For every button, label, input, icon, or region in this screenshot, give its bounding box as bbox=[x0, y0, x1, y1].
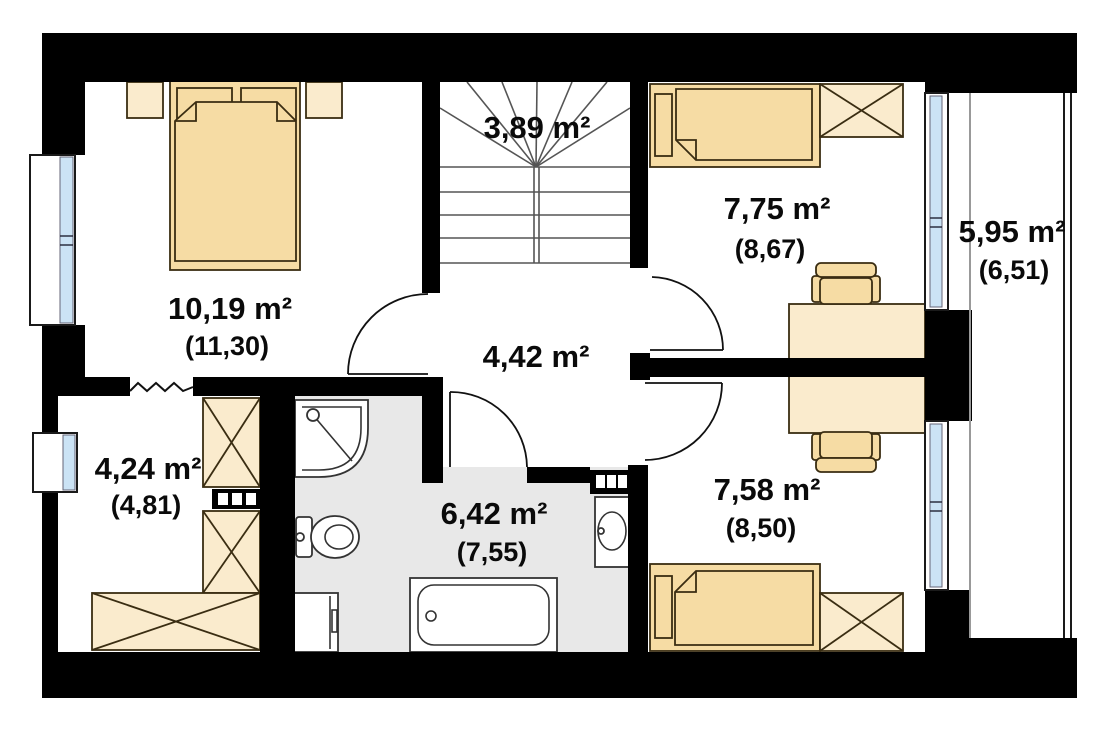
hallway-area-label: 4,42 m² bbox=[483, 339, 590, 374]
bedroom-area-alt-label: (11,30) bbox=[185, 331, 269, 361]
desk-chair-top bbox=[812, 263, 880, 304]
room-bottom-right-area-label: 7,58 m² bbox=[714, 472, 821, 507]
wardrobe-top-right bbox=[820, 84, 903, 137]
washbasin bbox=[595, 497, 630, 567]
room-bottom-right-area-alt-label: (8,50) bbox=[726, 513, 797, 543]
balcony-area-alt-label: (6,51) bbox=[979, 255, 1050, 285]
wardrobe-tall-lower bbox=[203, 511, 260, 593]
door-bathroom bbox=[450, 392, 527, 467]
door-bedroom bbox=[348, 294, 428, 374]
wardrobe-horizontal bbox=[92, 593, 260, 650]
double-bed bbox=[170, 80, 300, 270]
window-wardrobe-room-left bbox=[33, 433, 77, 492]
nightstand-left bbox=[127, 82, 163, 118]
wardrobe-room-area-label: 4,24 m² bbox=[95, 451, 202, 486]
window-bedroom-left bbox=[30, 155, 75, 325]
single-bed-top bbox=[650, 84, 820, 167]
washing-machine bbox=[294, 593, 338, 652]
balcony-area-label: 5,95 m² bbox=[959, 214, 1066, 249]
door-room-bottom-right bbox=[645, 383, 722, 460]
floor-plan: 3,89 m² 10,19 m² (11,30) 7,75 m² (8,67) … bbox=[0, 0, 1112, 733]
bathroom-area-alt-label: (7,55) bbox=[457, 537, 528, 567]
wardrobe-room-area-alt-label: (4,81) bbox=[111, 490, 182, 520]
room-top-right-area-label: 7,75 m² bbox=[724, 191, 831, 226]
nightstand-right bbox=[306, 82, 342, 118]
desk-chair-bottom bbox=[812, 432, 880, 472]
balcony-outline bbox=[970, 93, 1071, 638]
window-right-lower bbox=[925, 421, 948, 590]
radiator-grill-bathroom bbox=[590, 470, 630, 494]
wardrobe-tall-upper bbox=[203, 398, 260, 487]
knee-wall-zigzag bbox=[130, 383, 193, 391]
toilet bbox=[296, 516, 359, 558]
room-top-right-area-alt-label: (8,67) bbox=[735, 234, 806, 264]
bathroom-area-label: 6,42 m² bbox=[441, 496, 548, 531]
wardrobe-bottom-right bbox=[820, 593, 903, 651]
floor-plan-drawing: 3,89 m² 10,19 m² (11,30) 7,75 m² (8,67) … bbox=[0, 0, 1112, 733]
bedroom-area-label: 10,19 m² bbox=[168, 291, 292, 326]
bathtub bbox=[410, 578, 557, 652]
stairs-area-label: 3,89 m² bbox=[484, 110, 591, 145]
window-right-upper bbox=[925, 93, 948, 310]
door-room-top-right bbox=[650, 277, 723, 350]
radiator-grill-wardrobe-room bbox=[212, 489, 260, 509]
single-bed-bottom bbox=[650, 564, 820, 651]
